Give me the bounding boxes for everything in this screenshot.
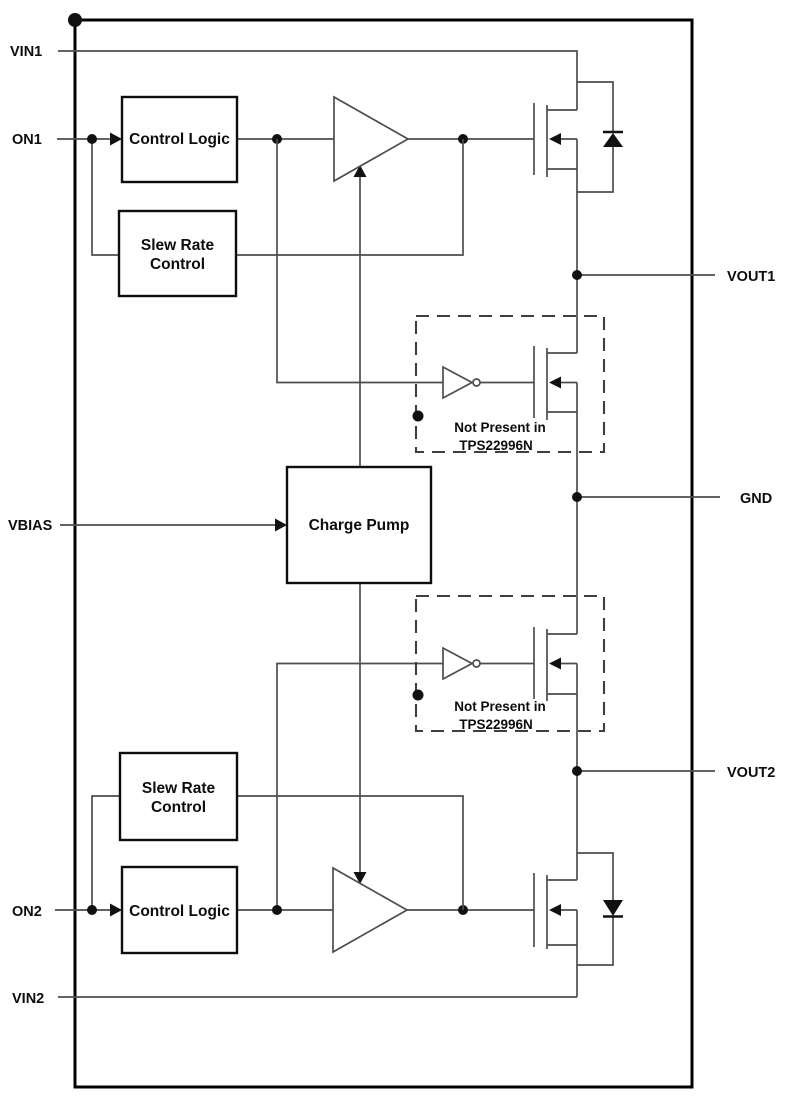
control-logic-1-output-net bbox=[238, 134, 334, 144]
slew-rate-control-2-block: Slew Rate Control bbox=[120, 753, 237, 840]
qod-fet-1 bbox=[534, 346, 577, 420]
not-present-note-1-line1: Not Present in bbox=[454, 420, 546, 435]
inverter-1 bbox=[443, 367, 480, 398]
control-logic-2-block: Control Logic bbox=[122, 867, 237, 953]
pin-label-on2: ON2 bbox=[12, 904, 42, 920]
control-logic-1-label: Control Logic bbox=[129, 131, 230, 148]
charge-pump-label: Charge Pump bbox=[309, 517, 410, 534]
qod-fet-2 bbox=[534, 627, 577, 701]
slew-rate-1-label-line2: Control bbox=[150, 256, 205, 273]
diagram-canvas: Not Present in TPS22996N Not Present in … bbox=[0, 0, 787, 1100]
slew-rate-2-label-line2: Control bbox=[151, 799, 206, 816]
slew-rate-1-label-line1: Slew Rate bbox=[141, 237, 215, 254]
on1-net bbox=[57, 133, 122, 256]
gate-driver-buffer-1 bbox=[334, 97, 408, 181]
block-diagram: Not Present in TPS22996N Not Present in … bbox=[0, 0, 787, 1100]
charge-pump-rail-up bbox=[354, 165, 367, 467]
corner-junction-dot bbox=[68, 13, 82, 27]
pin-label-gnd: GND bbox=[740, 491, 772, 507]
dashed-region-2-dot bbox=[413, 690, 424, 701]
body-diode-2 bbox=[577, 853, 623, 965]
buffer-1-output-net bbox=[408, 134, 534, 144]
pin-label-vin2: VIN2 bbox=[12, 991, 44, 1007]
gnd-net bbox=[572, 492, 720, 502]
body-diode-1 bbox=[577, 82, 623, 192]
pin-label-vout2: VOUT2 bbox=[727, 765, 775, 781]
charge-pump-rail-down bbox=[354, 583, 367, 884]
pin-label-vin1: VIN1 bbox=[10, 44, 42, 60]
control-logic-2-output-net bbox=[238, 905, 333, 915]
not-present-note-1-line2: TPS22996N bbox=[459, 438, 533, 453]
slew-rate-control-1-block: Slew Rate Control bbox=[119, 211, 236, 296]
control-logic-2-label: Control Logic bbox=[129, 903, 230, 920]
slew-rate-2-label-line1: Slew Rate bbox=[142, 780, 216, 797]
pass-fet-2 bbox=[534, 873, 577, 949]
pin-label-vbias: VBIAS bbox=[8, 518, 53, 534]
not-present-note-2-line1: Not Present in bbox=[454, 699, 546, 714]
charge-pump-block: Charge Pump bbox=[287, 467, 431, 583]
vout2-net bbox=[572, 766, 715, 776]
buffer-2-output-net bbox=[407, 905, 534, 915]
gate-driver-buffer-2 bbox=[333, 868, 407, 952]
on2-net bbox=[55, 796, 122, 917]
control-logic-1-block: Control Logic bbox=[122, 97, 237, 182]
pass-fet-1 bbox=[534, 103, 577, 177]
inverter-2 bbox=[443, 648, 480, 679]
not-present-note-2-line2: TPS22996N bbox=[459, 717, 533, 732]
dashed-region-1-dot bbox=[413, 411, 424, 422]
pin-label-vout1: VOUT1 bbox=[727, 269, 775, 285]
vout1-net bbox=[572, 270, 715, 280]
pin-label-on1: ON1 bbox=[12, 132, 42, 148]
vbias-net bbox=[60, 519, 287, 532]
